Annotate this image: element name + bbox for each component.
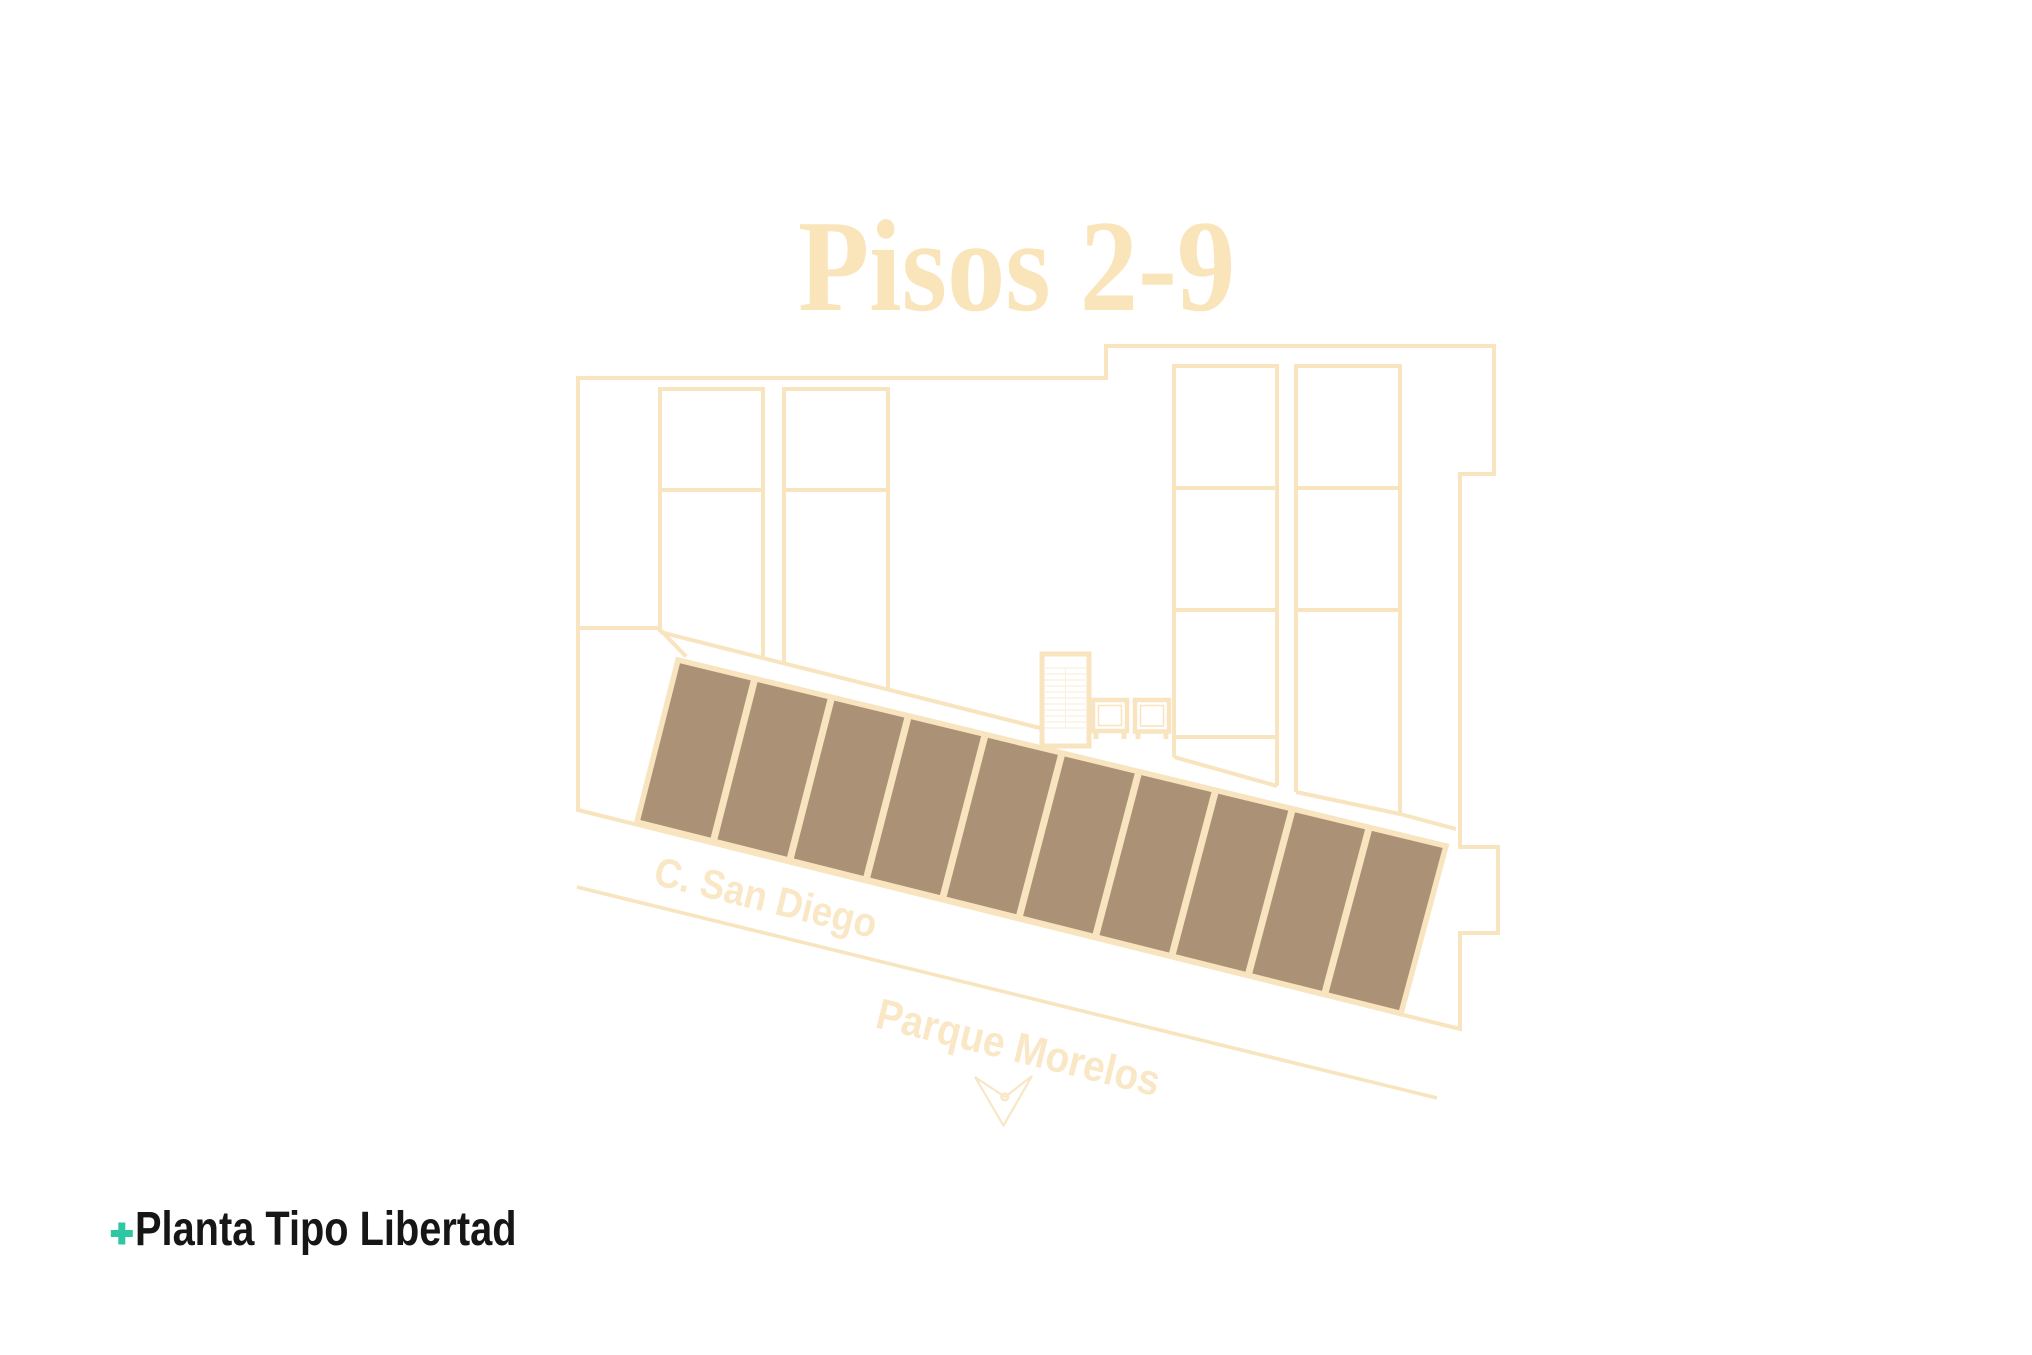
svg-text:Parque Morelos: Parque Morelos [872,989,1165,1105]
svg-text:Planta Tipo Libertad: Planta Tipo Libertad [135,1202,517,1256]
svg-text:Pisos 2-9: Pisos 2-9 [798,194,1235,339]
